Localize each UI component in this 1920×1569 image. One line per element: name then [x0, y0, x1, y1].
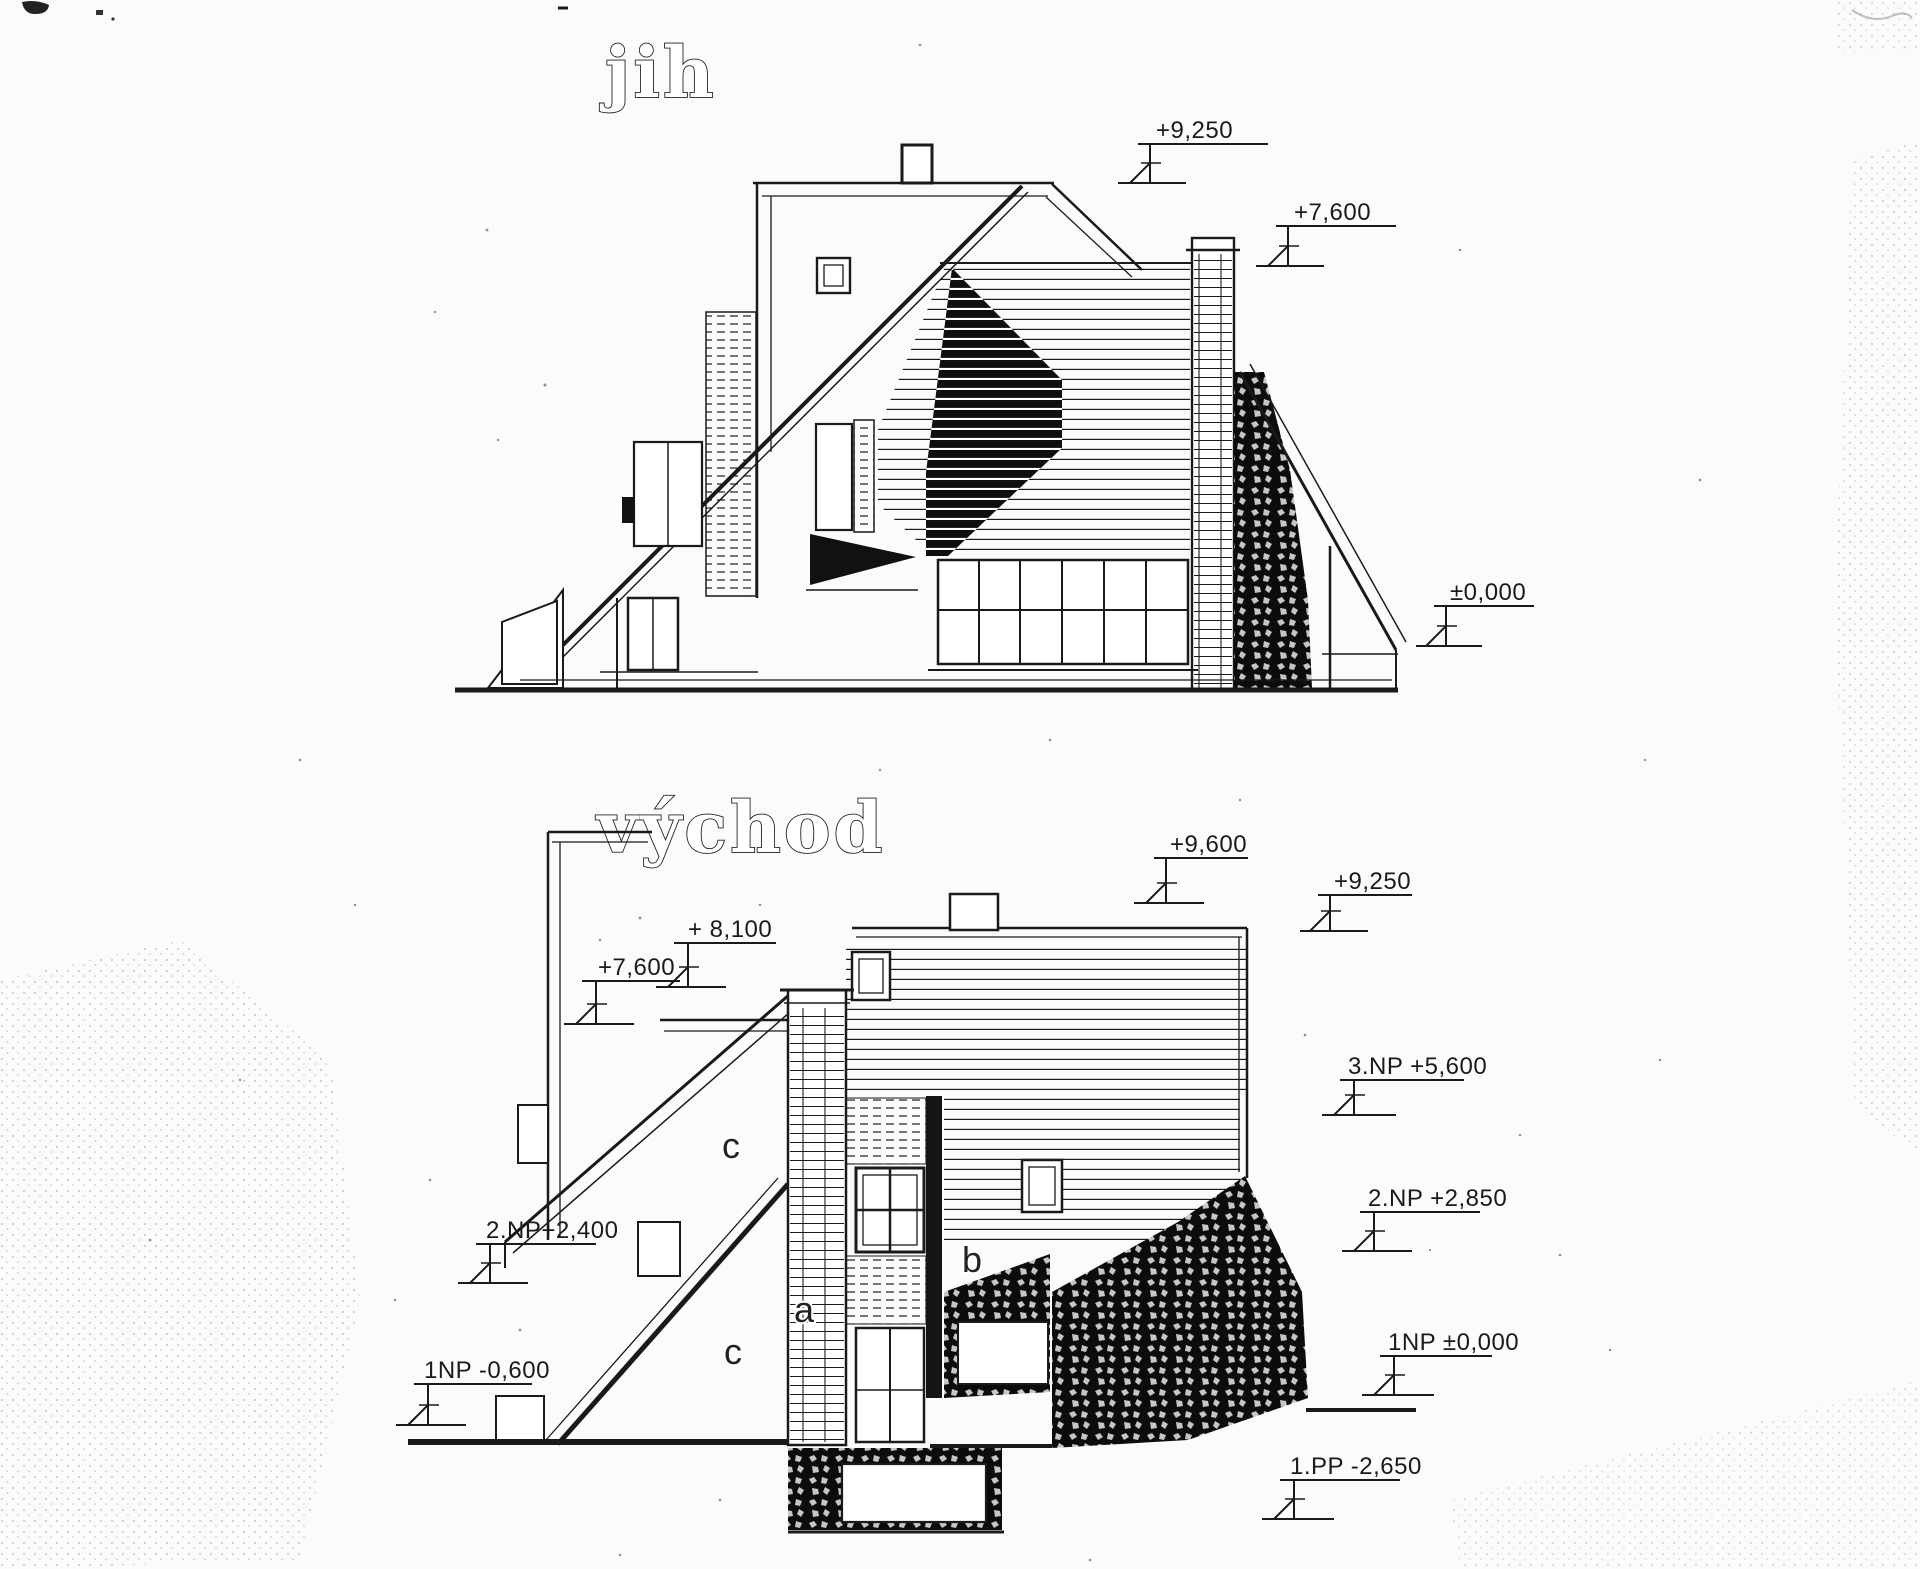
- rooftop-chimney-stub: [902, 145, 932, 183]
- elevation-marker-south-9250: +9,250: [1118, 117, 1268, 183]
- box-roof-chimney-stub: [950, 894, 998, 930]
- elevation-marker-east-7600: +7,600: [564, 954, 680, 1024]
- south-leanto: [488, 590, 563, 688]
- elevation-marker-east-pp1: 1.PP -2,650: [1262, 1453, 1422, 1519]
- svg-text:+ 8,100: + 8,100: [688, 916, 772, 943]
- corner-post-shadow: [926, 1096, 942, 1398]
- elevation-marker-south-7600: +7,600: [1256, 199, 1396, 266]
- elevation-marker-east-9600: +9,600: [1134, 831, 1248, 903]
- elevation-marker-east-np2-left: 2.NP+2,400: [458, 1217, 618, 1283]
- awning-wedge: [810, 534, 916, 585]
- svg-text:+7,600: +7,600: [1294, 199, 1371, 226]
- south-chimney: [1186, 238, 1240, 690]
- east-chimney: [780, 990, 854, 1445]
- rubble-recess: [958, 1322, 1048, 1384]
- section-label-a: a: [794, 1289, 815, 1330]
- elevation-marker-east-9250: +9,250: [1300, 868, 1412, 931]
- svg-text:1NP ±0,000: 1NP ±0,000: [1388, 1329, 1519, 1356]
- south-left-wall: [600, 312, 918, 688]
- plank-strip: [706, 312, 756, 596]
- elevation-marker-east-np3: 3.NP +5,600: [1322, 1053, 1487, 1115]
- corner-ink-mark: [22, 1, 49, 14]
- gable-window: [638, 1222, 680, 1276]
- center-window-column: [816, 424, 852, 530]
- scanned-drawing-sheet: jih: [0, 0, 1920, 1569]
- leanto-window: [502, 601, 557, 684]
- svg-text:2.NP+2,400: 2.NP+2,400: [486, 1217, 618, 1244]
- south-window-band: [928, 560, 1198, 670]
- svg-text:2.NP +2,850: 2.NP +2,850: [1368, 1185, 1507, 1212]
- elevation-marker-east-np2-right: 2.NP +2,850: [1342, 1185, 1507, 1251]
- east-elevation: východ: [396, 786, 1519, 1532]
- elevation-marker-east-np1-right: 1NP ±0,000: [1362, 1329, 1519, 1395]
- east-title: východ: [595, 786, 886, 869]
- east-mid-roof: [660, 1020, 788, 1031]
- left-wall-panel: [518, 1105, 548, 1163]
- svg-text:±0,000: ±0,000: [1450, 579, 1526, 606]
- box-lower-window: [1022, 1160, 1062, 1212]
- leanto-low-window: [496, 1396, 544, 1440]
- east-left-wall: [518, 832, 652, 1240]
- svg-text:+7,600: +7,600: [598, 954, 675, 981]
- section-label-b: b: [962, 1239, 982, 1280]
- svg-text:1NP -0,600: 1NP -0,600: [424, 1357, 550, 1384]
- svg-text:+9,250: +9,250: [1334, 868, 1411, 895]
- svg-text:3.NP +5,600: 3.NP +5,600: [1348, 1053, 1487, 1080]
- elevation-marker-south-zero: ±0,000: [1416, 579, 1534, 646]
- east-basement: [788, 1448, 1002, 1530]
- drawing-canvas: jih: [0, 0, 1920, 1569]
- south-main-roof: [870, 258, 1200, 568]
- section-label-c-upper: c: [722, 1125, 740, 1166]
- south-stone-wall: [1234, 372, 1312, 688]
- svg-text:+9,250: +9,250: [1156, 117, 1233, 144]
- south-title: jih: [599, 31, 717, 114]
- east-center-wall: [846, 1096, 942, 1442]
- small-square-window: [817, 258, 850, 293]
- svg-text:+9,600: +9,600: [1170, 831, 1247, 858]
- section-label-c-lower: c: [724, 1331, 742, 1372]
- svg-text:1.PP -2,650: 1.PP -2,650: [1290, 1453, 1422, 1480]
- basement-window: [842, 1464, 986, 1522]
- south-elevation: jih: [455, 31, 1534, 690]
